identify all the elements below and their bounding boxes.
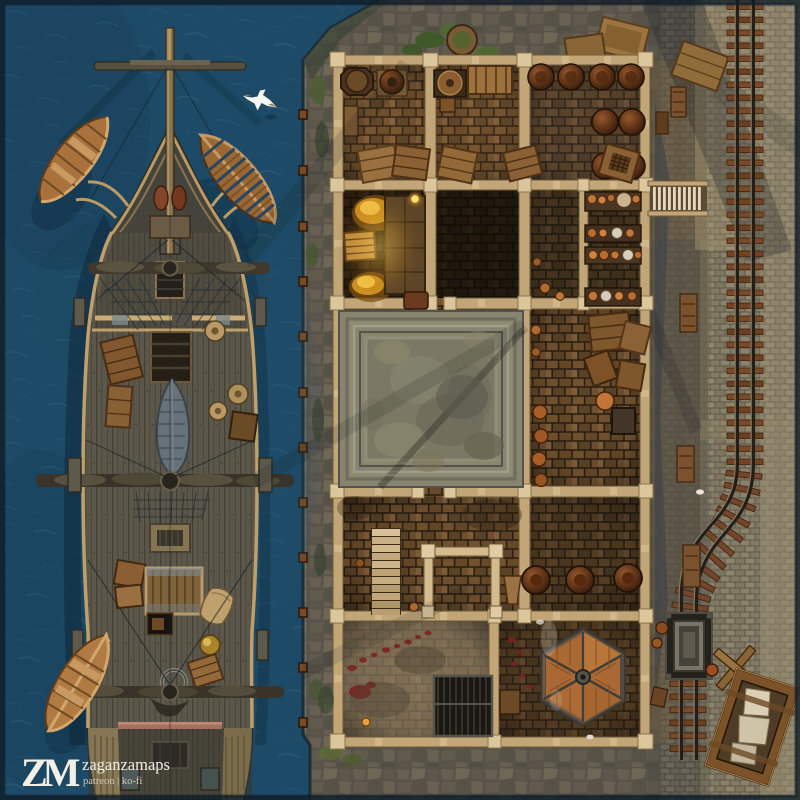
svg-text:zaganzamaps: zaganzamaps (82, 755, 170, 774)
svg-text:ZM: ZM (21, 750, 80, 795)
svg-text:patreon | ko-fi: patreon | ko-fi (83, 776, 142, 787)
